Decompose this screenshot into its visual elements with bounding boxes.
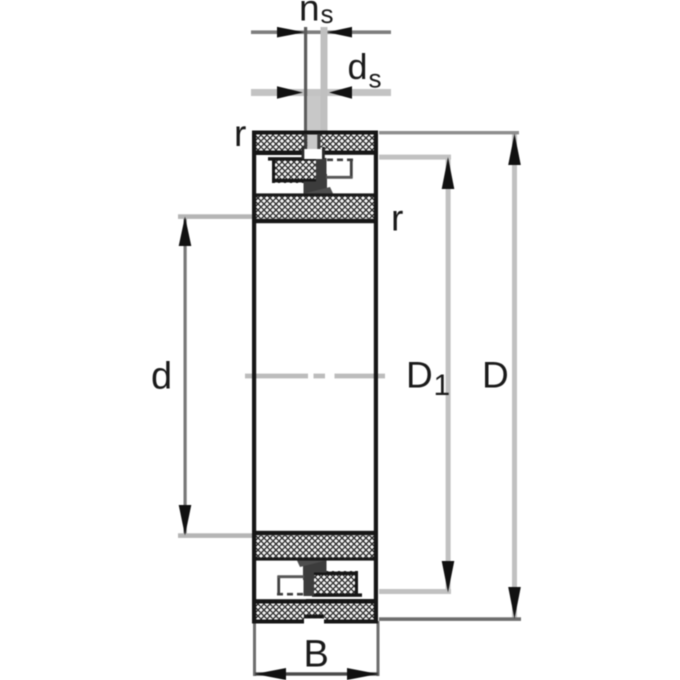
svg-text:D: D	[406, 355, 433, 396]
svg-text:n: n	[299, 0, 320, 29]
svg-text:d: d	[348, 46, 368, 87]
svg-text:B: B	[304, 634, 329, 676]
svg-text:1: 1	[434, 369, 451, 402]
svg-text:r: r	[234, 113, 246, 154]
svg-text:s: s	[369, 64, 382, 94]
svg-text:s: s	[321, 0, 334, 29]
svg-text:D: D	[482, 355, 509, 396]
svg-text:r: r	[391, 198, 403, 239]
svg-text:d: d	[151, 356, 172, 398]
